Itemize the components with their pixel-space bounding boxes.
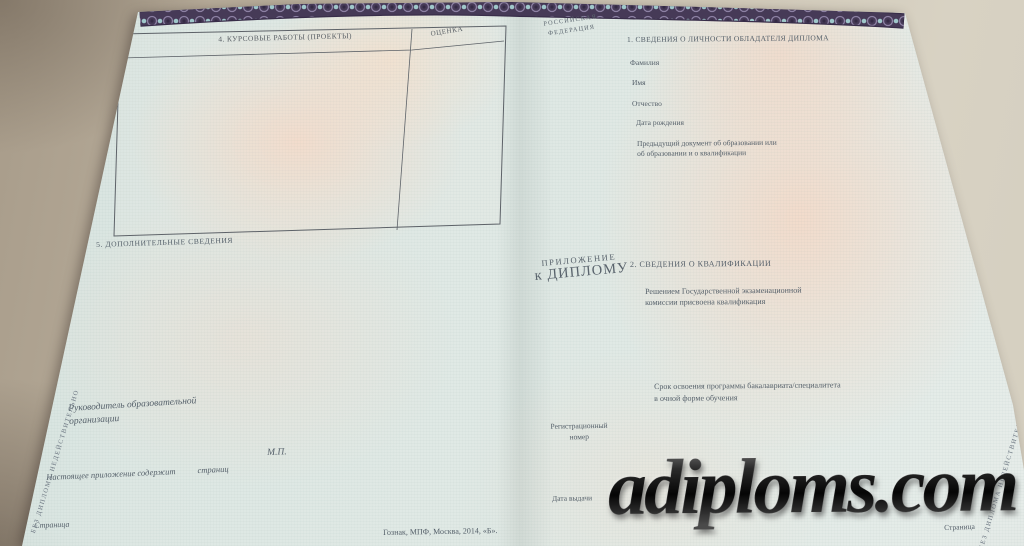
previous-document-line1: Предыдущий документ об образовании или xyxy=(637,138,777,149)
program-duration-line2: в очной форме обучения xyxy=(654,391,841,404)
qualification-section-title: 2. СВЕДЕНИЯ О КВАЛИФИКАЦИИ xyxy=(630,259,771,269)
birth-date-label: Дата рождения xyxy=(636,118,684,127)
personal-section-title: 1. СВЕДЕНИЯ О ЛИЧНОСТИ ОБЛАДАТЕЛЯ ДИПЛОМ… xyxy=(627,33,829,44)
previous-document-line2: об образовании и о квалификации xyxy=(637,148,777,159)
given-name-label: Имя xyxy=(632,78,646,87)
qualification-decision-label: Решением Государственной экзаменационной… xyxy=(645,285,802,308)
photo-of-diploma-supplement: 4. КУРСОВЫЕ РАБОТЫ (ПРОЕКТЫ) ОЦЕНКА 5. Д… xyxy=(0,0,1024,546)
seal-placeholder-label: М.П. xyxy=(267,447,287,458)
pages-count-unit: страниц xyxy=(197,464,229,475)
qualification-decision-line1: Решением Государственной экзаменационной xyxy=(645,285,802,297)
double-headed-eagle-emblem-icon xyxy=(0,0,68,68)
previous-document-label: Предыдущий документ об образовании или о… xyxy=(637,138,777,159)
program-duration-label: Срок освоения программы бакалавриата/спе… xyxy=(654,379,841,404)
issue-date-label: Дата выдачи xyxy=(552,493,592,503)
site-watermark: adiploms.com xyxy=(608,439,1017,533)
surname-label: Фамилия xyxy=(630,58,659,67)
patronymic-label: Отчество xyxy=(632,99,662,108)
qualification-decision-line2: комиссии присвоена квалификация xyxy=(645,296,802,308)
program-duration-line1: Срок освоения программы бакалавриата/спе… xyxy=(654,379,841,392)
registration-number-line2: номер xyxy=(538,431,620,443)
registration-number-label: Регистрационный номер xyxy=(538,420,620,443)
